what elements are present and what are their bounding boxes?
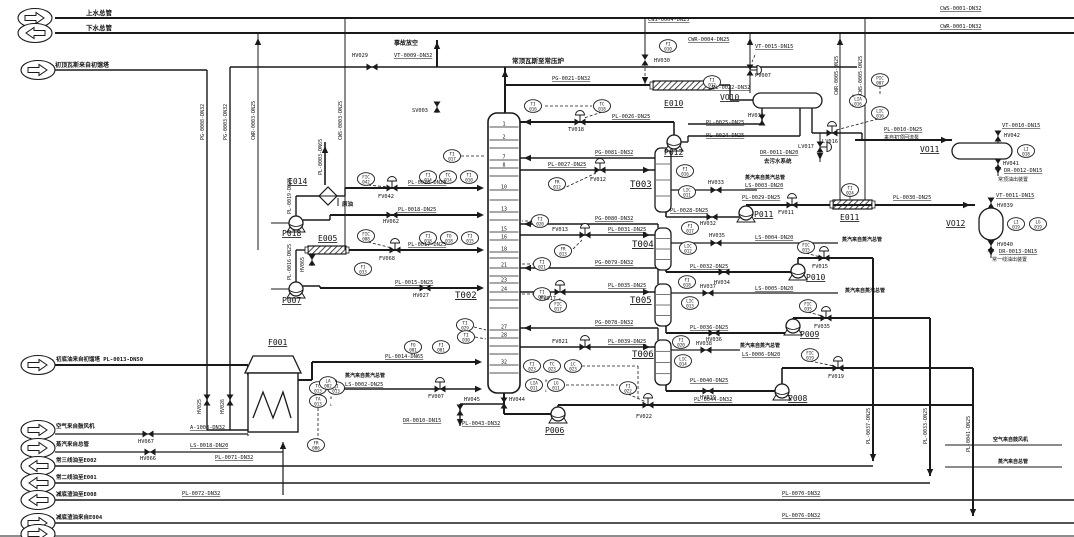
pipe-label: DR-0010-DN15 [403,418,441,424]
pipe-label: PL-0035-DN25 [608,283,646,289]
pipe-label: PG-0081-DN32 [595,150,633,156]
valve-wedge [575,119,581,126]
valve-actuator-dome [828,122,837,127]
pipe-label: 蒸汽来自蒸汽总管 [842,236,882,243]
valve-wedge [367,64,373,71]
pipe-label: FV019 [828,374,844,380]
instrument-signal-line [806,253,820,257]
exchanger-end-cap [830,201,833,208]
valve-wedge [227,395,234,401]
pipe-label: P012 [664,148,683,157]
pipe-label: P008 [788,394,807,403]
instrument-number: 016 [876,114,884,119]
valve-actuator-dome [575,110,584,115]
valve-wedge [145,449,151,456]
instrument-number: 023 [569,367,577,372]
gate-valve [707,214,718,221]
pipe-label: HV030 [654,58,670,64]
pipe-label: PL-0028-DN25 [670,208,708,214]
instrument-signal-line [836,119,878,130]
pipe-label: PL-0014-DN65 [385,354,423,360]
instrument-number: 021 [538,265,546,270]
pipe-label: PL-0022-DN32 [712,85,750,91]
valve-wedge [434,107,441,113]
gate-valve [434,102,441,113]
tray-number: 27 [501,325,507,331]
pipe-label: HV044 [509,397,525,403]
valve-wedge [227,400,234,406]
tray-number: 28 [501,333,507,339]
flow-arrow [970,509,976,516]
valve-wedge [706,347,712,354]
valve-actuator-dome [834,357,843,362]
pipe-label: 常三线油至E002 [56,456,97,464]
instrument-number: 010 [465,178,473,183]
pipe-label: 原油 [342,200,354,208]
tray-number: 1 [502,122,505,128]
tray-number: 23 [501,278,507,284]
instrument-number: 014 [679,362,687,367]
pipe-label: HV025 [197,399,203,414]
valve-wedge [817,147,824,153]
pipe-label: H [545,378,548,383]
pipe-label: DR-0011-DN20 [760,150,798,156]
pipe-label: LS-0018-DN20 [190,443,228,449]
valve-wedge [600,167,606,174]
valve-actuator-dome [391,239,400,244]
valve-wedge [434,102,441,108]
instrument-signal-line [474,327,486,330]
pump-symbol [289,216,303,230]
valve-wedge [580,232,586,239]
pipe-label: P018 [282,229,301,238]
pipe-label: E010 [664,99,683,108]
gate-valve [227,395,234,406]
pipe-label: HV027 [413,293,429,299]
pipe-label: CWS-0003-DN25 [338,101,344,140]
pipe-label: PL-0016-DN25 [287,244,293,280]
valve-actuator-dome [822,307,831,312]
pump-symbol [786,319,800,333]
pipe-label: VT-0010-DN15 [1002,123,1040,129]
valve-actuator-dome [581,224,590,229]
tray-number: 18 [501,247,507,253]
pipe-label: FV017 [540,296,556,302]
valve-wedge [819,255,825,262]
instrument-number: 008 [362,237,370,242]
flow-arrow [477,247,484,253]
instrument-signal-line [810,361,834,366]
pipe-label: VO10 [720,93,739,102]
instrument-number: 001 [437,348,445,353]
control-valve [390,239,401,254]
pipe-label: 来自初顶回流泵 [884,134,919,141]
valve-wedge [580,119,586,126]
pipe-label: PG-0080-DN32 [595,216,633,222]
pipe-label: HV038 [696,341,712,347]
instrument-number: 011 [683,193,691,198]
gate-valve [501,398,508,409]
valve-wedge [555,289,561,296]
pipe-label: P011 [754,210,773,219]
pipe-label: PV007 [755,73,771,79]
valve-wedge [716,240,722,247]
exchanger-end-cap [305,247,308,253]
valve-wedge [148,431,154,438]
pipe-label: E005 [318,234,337,243]
control-valve [595,159,606,174]
pipe-label: PL-0044-DN32 [694,397,732,403]
instrument-number: 002 [324,384,332,389]
pipe-label: HV062 [383,219,399,225]
valve-wedge [707,214,713,221]
pipe-label: PG-0003-DN32 [223,104,229,140]
instrument-signal-line [584,112,602,118]
gate-valve [711,240,722,247]
gate-valve [701,347,712,354]
pipe-label: VT-0015-DN15 [755,44,793,50]
pipe-label: 蒸汽来自总管 [998,458,1028,465]
pipe-label: PL-0024-DN25 [706,133,744,139]
pipe-label: 去污水系统 [764,157,792,165]
pipe-label: TV018 [568,127,584,133]
pipe-label: LS-0004-DN20 [755,235,793,241]
pipe-label: 蒸汽来自蒸汽总管 [745,174,785,181]
gate-valve [995,131,1002,142]
pipe-label: SV003 [412,108,428,114]
instrument-number: 001 [409,348,417,353]
pipe-label: HV033 [708,180,724,186]
flow-arrow [280,442,286,449]
valve-actuator-dome [820,247,829,252]
pipe-label: T002 [455,291,477,301]
valve-wedge [642,55,649,61]
gate-valve [204,395,211,406]
valve-wedge [708,388,714,395]
valve-wedge [457,405,464,411]
instrument-number: 020 [536,222,544,227]
pipe-label: CWS-0005-DN25 [858,56,864,95]
valve-wedge [712,214,718,221]
pipe-label: PL-0076-DN32 [782,513,820,519]
flow-arrow [524,119,531,125]
valve-wedge [390,247,396,254]
instrument-number: 016 [854,102,862,107]
instrument-number: 010 [664,47,672,52]
pipe-label: LS-0006-DN20 [742,352,780,358]
valve-wedge [792,202,798,209]
instrument-signal-line [368,185,388,187]
instrument-signal-line [368,242,392,248]
valve-wedge [988,246,995,252]
valve-wedge [457,410,464,416]
valve-wedge [372,64,378,71]
pipe-label: HV032 [700,221,716,227]
flow-arrow [475,386,482,392]
instrument-number: 016 [529,107,537,112]
pipe-label: PL-0003-DN65 [318,139,324,175]
tray-number: 15 [501,227,507,233]
control-valve [821,307,832,322]
valve-wedge [701,347,707,354]
instrument-number: 016 [681,172,689,177]
flow-arrow [477,185,484,191]
pipe-label: P009 [800,330,819,339]
pipe-label: CWR-0001-DN32 [940,24,981,30]
flow-arrow [475,359,482,365]
pipe-label: 初顶瓦斯来自初馏塔 [55,61,110,69]
pump-symbol [775,384,789,398]
pipe-label: HV042 [1004,133,1020,139]
pipe-label: 蒸汽来自蒸汽总管 [740,342,780,349]
valve-wedge [309,255,316,261]
pipe-label: PL-0041-DN25 [966,416,972,452]
pipe-label: 下水总管 [86,23,113,32]
pipe-label: LV017 [798,144,814,150]
instrument-number: 017 [554,307,562,312]
pipe-label: T003 [630,180,652,190]
valve-wedge [821,315,827,322]
pipe-label: PL-0071-DN32 [215,455,253,461]
valve-wedge [387,212,393,219]
control-valve [833,357,844,372]
valve-actuator-dome [644,394,653,399]
flow-arrow [524,155,531,161]
flow-arrow [643,289,650,295]
pipe-label: 蒸汽来自总管 [55,440,90,448]
pipe-label: FV068 [379,256,395,262]
furnace-roof [245,356,301,373]
pump-symbol [667,135,681,149]
pipe-label: T004 [632,240,654,250]
horizontal-drum [753,93,822,108]
pipe-label: CWS-0004-DN25 [648,17,689,23]
pipe-label: CWR-0004-DN25 [688,37,729,43]
instrument-number: 017 [686,229,694,234]
pipe-label: HV029 [352,53,368,59]
valve-actuator-dome [436,378,445,382]
instrument-number: 015 [802,248,810,253]
valve-wedge [826,315,832,322]
pipe-label: A-1008-DN32 [190,425,225,431]
instrument-number: 011 [552,386,560,391]
gate-valve [387,212,398,219]
instrument-signal-line [808,312,822,316]
valve-wedge [703,388,709,395]
pipe-label: 蒸汽来自蒸汽总管 [345,372,385,379]
gate-valve [367,64,378,71]
pipe-label: PG-0078-DN32 [595,320,633,326]
pipe-label: FV007 [428,394,444,400]
pipe-label: VT-0011-DN15 [996,193,1034,199]
pipe-label: CWR-0005-DN25 [834,56,840,95]
pipe-label: PL-0018-DN25 [398,207,436,213]
pipe-label: PG-0079-DN32 [595,260,633,266]
control-valve [787,194,798,209]
pipe-label: PL-0020-DN25 [408,180,446,186]
valve-wedge [708,290,714,297]
instrument-number: 019 [1034,225,1042,230]
instrument-number: 012 [553,185,561,190]
pipe-label: VT-0009-DN32 [394,53,432,59]
heat-exchanger [653,81,711,90]
pipe-label: FV011 [778,210,794,216]
pipe-label: DR-0012-DN15 [1004,168,1042,174]
valve-wedge [833,365,839,372]
valve-wedge [759,120,766,126]
pipe-label: HV065 [300,257,306,272]
valve-wedge [988,198,995,204]
pipe-label: T006 [632,350,654,360]
valve-wedge [824,255,830,262]
pipe-label: P007 [282,296,301,305]
valve-wedge [988,241,995,247]
pipe-label: LS-0002-DN25 [345,382,383,388]
tray-number: 21 [501,263,507,269]
control-valve [819,247,830,262]
pipe-label: PL-0010-DN25 [884,127,922,133]
pipe-label: FV012 [590,177,606,183]
tray-number: 13 [501,207,507,213]
instrument-number: 013 [559,252,567,257]
valve-wedge [995,159,1002,165]
furnace-body-F001 [248,373,298,432]
valve-wedge [827,130,833,137]
heat-exchanger [308,246,346,254]
pipe-label: PL-0015-DN25 [395,280,433,286]
instrument-number: 020 [677,343,685,348]
valve-wedge [642,60,649,66]
flow-arrow [643,167,650,173]
pipe-label: LS-0005-DN20 [755,286,793,292]
valve-wedge [995,164,1002,170]
pipe-label: 初底油来自初馏塔 PL-0013-DN50 [56,355,143,363]
instrument-number: 017 [448,157,456,162]
control-valve [387,177,398,192]
pipe-label: P006 [545,426,564,435]
valve-wedge [711,187,717,194]
valve-wedge [204,400,211,406]
valve-wedge [392,185,398,192]
instrument-number: 024 [846,191,854,196]
horizontal-drum [952,143,1012,159]
instrument-number: 018 [1022,152,1030,157]
instrument-number: 019 [1012,225,1020,230]
valve-wedge [387,185,393,192]
pipe-label: PL-0029-DN25 [742,195,780,201]
control-valve [580,224,591,239]
pipe-label: 常一线油出装置 [992,256,1027,263]
valve-actuator-dome [788,194,797,199]
instrument-number: 023 [548,367,556,372]
valve-wedge [716,187,722,194]
tray-number: 16 [501,235,507,241]
pipe-label: PL-0072-DN32 [182,491,220,497]
gate-valve [711,187,722,194]
flow-arrow [870,454,876,461]
pipe-label: FV035 [814,324,830,330]
pipe-label: H [330,395,333,400]
pipe-label: PL-0027-DN25 [548,162,586,168]
valve-actuator-dome [596,159,605,164]
instrument-number: 035 [804,307,812,312]
pipe-label: HV035 [709,233,725,239]
exchanger-end-cap [650,82,653,89]
valve-wedge [595,167,601,174]
pipe-label: PL-0036-DN25 [690,325,728,331]
gate-valve [143,431,154,438]
flow-arrow [963,202,970,208]
pipe-label: DR-0013-DN15 [999,249,1037,255]
pipe-label: HV041 [1003,161,1019,167]
valve-wedge [703,290,709,297]
pipe-label: FV015 [812,264,828,270]
pipe-label: CWR-0003-DN25 [251,101,257,140]
valve-wedge [995,136,1002,142]
valve-actuator-dome [556,281,565,286]
valve-wedge [585,344,591,351]
instrument-signal-line [475,337,486,339]
flow-arrow [747,38,753,45]
pipe-label: HV040 [997,242,1013,248]
pipe-label: 空气来自鼓风机 [993,436,1028,443]
flow-arrow [524,265,531,271]
instrument-number: 018 [683,283,691,288]
valve-wedge [580,344,586,351]
pipe-label: HV066 [140,456,156,462]
flow-arrow [524,221,531,227]
pipe-label: L [545,388,548,393]
pipe-label: PL-0025-DN25 [706,120,744,126]
pid-drawing-canvas: 12781013151618212324272832TI016TC018TI01… [0,0,1074,537]
pipe-label: PL-0043-DN32 [462,421,500,427]
pipe-label: PL-0017-DN25 [408,242,446,248]
gate-valve [703,290,714,297]
pipe-label: 减底渣油来自E004 [56,513,103,521]
instrument-number: 013 [686,304,694,309]
instrument-number: 012 [684,249,692,254]
pipe-label: FV021 [552,339,568,345]
valve-actuator-dome [388,177,397,182]
flow-arrow [255,38,261,45]
pipe-label: LV016 [822,139,838,145]
gate-valve [145,449,156,456]
flow-arrow [837,38,843,45]
pipe-label: HV067 [138,439,154,445]
valve-wedge [832,130,838,137]
pid-diagram: 12781013151618212324272832TI016TC018TI01… [0,0,1074,537]
pipe-label: PG-0021-DN32 [552,76,590,82]
instrument-number: 011 [530,386,538,391]
pipe-label: PL-0037-DN25 [866,408,872,444]
valve-wedge [988,203,995,209]
gate-valve [457,405,464,416]
instrument-number: 022 [624,389,632,394]
pipe-label: HV031 [748,113,764,119]
gate-valve [988,198,995,209]
pipe-label: PL-0033-DN25 [923,408,929,444]
instrument-number: 007 [876,81,884,86]
pipe-label: HV045 [464,397,480,403]
pipe-label: PL-0070-DN32 [782,491,820,497]
pipe-label: PG-0008-DN32 [200,104,206,140]
instrument-number: 019 [806,356,814,361]
gate-valve [309,255,316,266]
valve-wedge [204,395,211,401]
flow-arrow [502,70,508,77]
pipe-label: 上水总管 [86,8,113,17]
pipe-label: E011 [840,213,859,222]
